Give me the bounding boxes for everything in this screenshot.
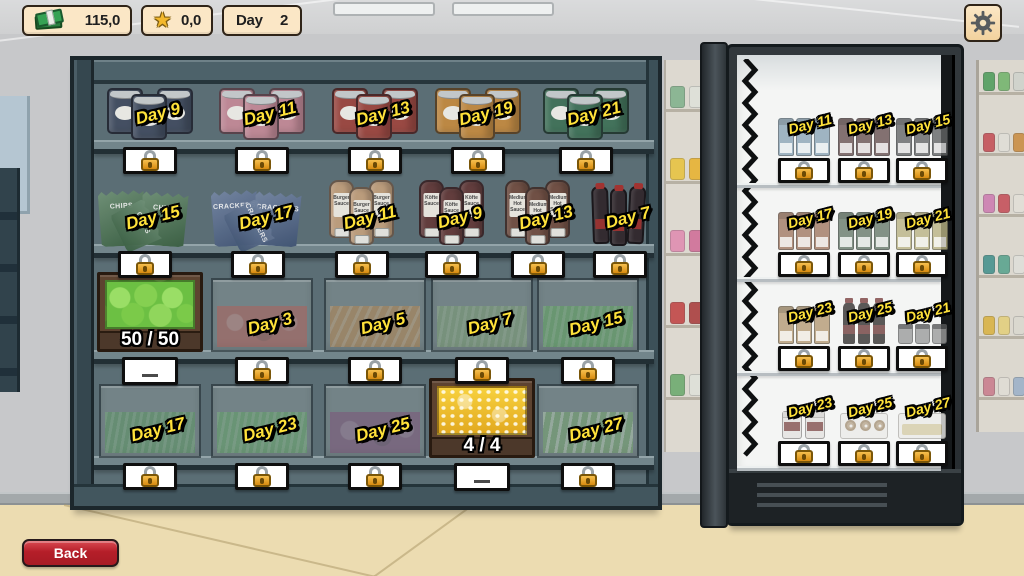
padlock-keyhole [802,454,806,460]
fridge-product-carton [837,198,891,250]
padlock-body [579,474,597,487]
ceiling-light [452,2,554,16]
background-shelf-line [979,336,1024,339]
lock-button[interactable] [896,346,948,371]
background-product [670,302,685,324]
padlock-body [795,167,813,180]
padlock-body [529,262,547,275]
padlock-keyhole [802,265,806,271]
padlock-body [141,474,159,487]
fridge-product-carton [777,104,831,156]
background-shelf-line [979,214,1024,217]
padlock-body [855,261,873,274]
product-bin-greens [99,384,201,458]
padlock-icon [795,444,813,463]
background-product [983,194,995,213]
padlock-keyhole [862,171,866,177]
product-cans [105,88,195,142]
fridge-product-carton [895,104,949,156]
bottle-label: Köfte Sauce [423,193,440,217]
padlock-icon [855,161,873,180]
star-value: 0,0 [181,12,201,29]
bin-glass [326,280,424,350]
lock-button[interactable] [118,251,172,278]
fridge-product-pot [777,387,831,439]
padlock-body [795,450,813,463]
background-product [1013,377,1024,396]
padlock-body [469,158,487,171]
background-shelf-left [0,168,20,392]
restock-button[interactable] [122,357,178,385]
padlock-keyhole [586,372,590,378]
background-product [998,377,1010,396]
lock-button[interactable] [348,147,402,174]
padlock-body [855,167,873,180]
background-product [998,316,1010,335]
padlock-keyhole [920,171,924,177]
lock-button[interactable] [896,441,948,466]
background-product [998,194,1010,213]
padlock-keyhole [476,162,480,168]
restock-button[interactable] [454,463,510,491]
day-label-text: Day [236,12,263,29]
background-shelf-line [979,397,1024,400]
lock-button[interactable] [593,251,647,278]
padlock-keyhole [373,478,377,484]
padlock-icon [141,150,159,171]
shelf-left-panel [74,60,94,506]
padlock-icon [913,349,931,368]
lock-button[interactable] [451,147,505,174]
lock-button[interactable] [123,147,177,174]
day-display: Day 2 [222,5,302,36]
padlock-body [473,368,491,381]
padlock-body [366,474,384,487]
background-product [1013,194,1024,213]
product-cans [217,88,307,142]
fridge-base-vents [757,483,887,509]
lock-button[interactable] [838,346,890,371]
lock-button[interactable] [235,463,289,490]
background-product [998,255,1010,274]
lock-button[interactable] [511,251,565,278]
padlock-body [913,261,931,274]
lock-button[interactable] [896,252,948,277]
padlock-keyhole [148,478,152,484]
padlock-keyhole [862,265,866,271]
padlock-body [913,355,931,368]
shelf-top-cap [74,60,658,84]
padlock-keyhole [920,359,924,365]
padlock-keyhole [586,478,590,484]
padlock-body [443,262,461,275]
background-product [1013,316,1024,335]
fridge-product-tub [837,387,891,439]
fridge-product-carton [837,104,891,156]
lock-button[interactable] [838,441,890,466]
background-product [983,72,995,91]
padlock-icon [136,254,154,275]
padlock-body [577,158,595,171]
lock-button[interactable] [778,252,830,277]
padlock-icon [529,254,547,275]
fridge-shelf-edge [737,371,941,376]
fridge-product-carton [895,198,949,250]
star-icon: ★ [153,10,172,31]
padlock-keyhole [618,266,622,272]
product-bags: CHIPSCHIPSCHIPS [97,184,193,246]
bottle-label: Medium Hot Sauce [529,200,546,224]
padlock-icon [366,360,384,381]
star-display: ★ 0,0 [141,5,213,36]
padlock-body [253,158,271,171]
stock-count: 50 / 50 [100,329,200,351]
padlock-icon [577,150,595,171]
padlock-body [795,355,813,368]
lock-button[interactable] [778,346,830,371]
fridge-door-edge [700,42,728,528]
background-shelf-line [979,92,1024,95]
padlock-body [579,368,597,381]
padlock-icon [795,255,813,274]
padlock-keyhole [862,454,866,460]
product-bags: CRACKERSCRACKERSCRACKERS [210,184,306,246]
padlock-keyhole [480,372,484,378]
fridge-product-bottle [837,292,891,344]
padlock-body [253,368,271,381]
padlock-body [913,450,931,463]
padlock-body [136,262,154,275]
padlock-icon [611,254,629,275]
lock-button[interactable] [425,251,479,278]
bottle-label: Burger Sauce [333,193,350,217]
fridge-shelf-edge [737,466,941,471]
padlock-keyhole [260,162,264,168]
padlock-keyhole [920,454,924,460]
product-bottles: Medium Hot SauceMedium Hot SauceMedium H… [503,180,573,246]
padlock-icon [579,360,597,381]
padlock-icon [353,254,371,275]
padlock-icon [913,444,931,463]
lock-button[interactable] [455,357,509,384]
padlock-icon [855,444,873,463]
dash-icon [142,374,158,377]
background-product [670,230,685,252]
shelf-right-panel [646,60,658,506]
padlock-icon [253,150,271,171]
bin-glass [213,386,311,456]
bottle-label: Medium Hot Sauce [549,193,566,217]
padlock-icon [366,466,384,487]
crate-content [437,386,527,435]
product-bin-greens [211,384,313,458]
padlock-keyhole [256,266,260,272]
stock-count: 4 / 4 [432,435,532,457]
padlock-keyhole [143,266,147,272]
lock-button[interactable] [235,147,289,174]
padlock-icon [253,466,271,487]
padlock-icon [855,255,873,274]
padlock-icon [795,161,813,180]
crate-content [105,280,195,329]
padlock-keyhole [450,266,454,272]
background-product [1013,133,1024,152]
bin-glass [213,280,311,350]
lock-button[interactable] [231,251,285,278]
product-bottles: Burger SauceBurger SauceBurger Sauce [327,180,397,246]
product-cans [541,88,631,142]
padlock-body [913,167,931,180]
padlock-icon [443,254,461,275]
padlock-icon [579,466,597,487]
product-bin-greens [537,278,639,352]
settings-button[interactable] [964,4,1002,42]
product-cans [433,88,523,142]
padlock-body [611,262,629,275]
padlock-icon [366,150,384,171]
padlock-icon [473,360,491,381]
padlock-keyhole [373,372,377,378]
lock-button[interactable] [235,357,289,384]
product-bin-greens [431,278,533,352]
lock-button[interactable] [838,158,890,183]
padlock-keyhole [360,266,364,272]
background-shelf-right [976,60,1024,432]
padlock-keyhole [373,162,377,168]
bottle-label: Köfte Sauce [443,200,460,224]
padlock-icon [795,349,813,368]
padlock-icon [855,349,873,368]
fridge-base [729,469,961,523]
padlock-body [366,368,384,381]
product-crate-corn: 4 / 4 [429,378,535,458]
padlock-body [855,450,873,463]
money-value: 115,0 [85,12,120,29]
product-bin-tomatoes [211,278,313,352]
bin-glass [326,386,424,456]
background-product [998,72,1010,91]
lock-button[interactable] [778,158,830,183]
product-bin-leeks [537,384,639,458]
padlock-body [366,158,384,171]
lock-button[interactable] [348,463,402,490]
background-product [670,86,685,108]
background-product [983,133,995,152]
product-bottles [590,184,650,246]
background-shelf-line [979,275,1024,278]
padlock-keyhole [862,359,866,365]
padlock-icon [913,255,931,274]
lock-button[interactable] [123,463,177,490]
background-product [670,374,685,396]
background-product [983,377,995,396]
padlock-body [855,355,873,368]
padlock-icon [249,254,267,275]
bin-glass [539,386,637,456]
background-product [670,158,685,180]
fridge-shelf-edge [737,277,941,282]
product-crate-cabbage: 50 / 50 [97,272,203,352]
lock-button[interactable] [778,441,830,466]
fridge-product-cup [895,292,949,344]
padlock-keyhole [802,359,806,365]
gear-icon [970,10,996,36]
fridge-product-carton [777,198,831,250]
ceiling-light [333,2,435,16]
day-value: 2 [280,12,288,29]
fridge-shelf-edge [737,183,941,188]
padlock-keyhole [260,372,264,378]
money-display: 115,0 [22,5,132,36]
padlock-icon [469,150,487,171]
bottle-label: Medium Hot Sauce [509,193,526,217]
fridge-top-glow [737,55,955,91]
background-product [1013,255,1024,274]
background-shelf-line [979,153,1024,156]
bottle-label: Köfte Sauce [463,193,480,217]
padlock-body [141,158,159,171]
bottle-label: Burger Sauce [373,193,390,217]
lock-button[interactable] [561,463,615,490]
product-bottles: Köfte SauceKöfte SauceKöfte Sauce [417,180,487,246]
padlock-keyhole [260,478,264,484]
padlock-body [253,474,271,487]
lock-button[interactable] [559,147,613,174]
bin-glass [433,280,531,350]
product-bin-red-cabbage [324,384,426,458]
lock-button[interactable] [561,357,615,384]
padlock-keyhole [802,171,806,177]
dash-icon [474,480,490,483]
bottle-label: Burger Sauce [353,200,370,224]
padlock-icon [913,161,931,180]
padlock-icon [253,360,271,381]
padlock-body [353,262,371,275]
padlock-body [249,262,267,275]
product-cans [330,88,420,142]
bin-glass [101,386,199,456]
bin-glass [539,280,637,350]
cash-icon [34,11,66,31]
padlock-keyhole [536,266,540,272]
background-product [983,255,995,274]
padlock-body [795,261,813,274]
lock-button[interactable] [348,357,402,384]
padlock-keyhole [920,265,924,271]
back-button[interactable]: Back [22,539,119,567]
lock-button[interactable] [896,158,948,183]
padlock-keyhole [584,162,588,168]
fridge-product-tub [895,387,949,439]
background-product [983,316,995,335]
background-product [998,133,1010,152]
lock-button[interactable] [335,251,389,278]
fridge-product-carton [777,292,831,344]
cooling-coil [741,59,759,463]
lock-button[interactable] [838,252,890,277]
game-scene: 115,0 ★ 0,0 Day 2 [0,0,1024,576]
padlock-keyhole [148,162,152,168]
product-bin-carrots [324,278,426,352]
background-product [1013,72,1024,91]
padlock-icon [141,466,159,487]
